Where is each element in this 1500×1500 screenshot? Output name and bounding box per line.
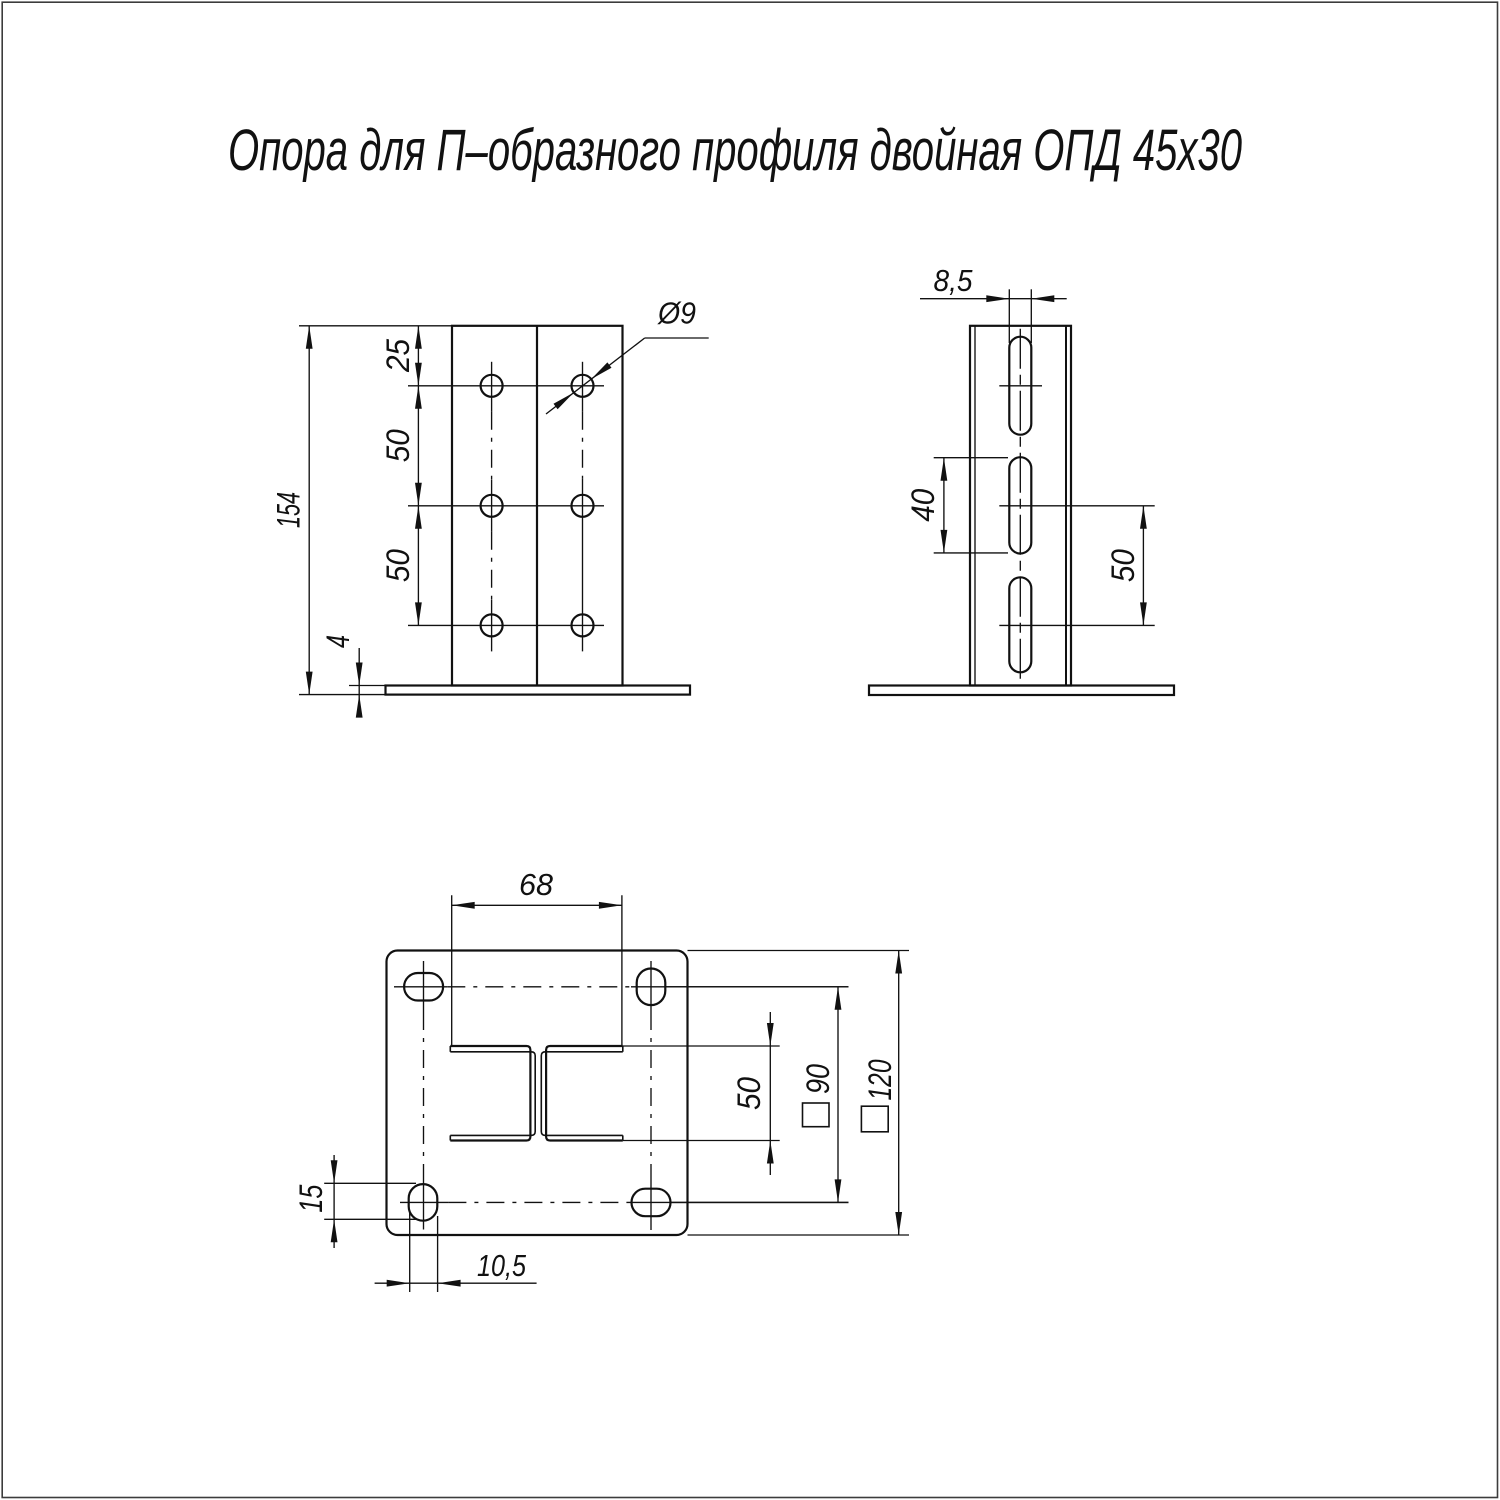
svg-text:40: 40 (905, 489, 941, 522)
svg-text:10,5: 10,5 (477, 1248, 527, 1283)
svg-text:4: 4 (320, 635, 356, 648)
svg-text:25: 25 (380, 339, 416, 373)
svg-text:50: 50 (731, 1077, 767, 1110)
svg-text:50: 50 (1105, 549, 1141, 582)
svg-text:68: 68 (519, 867, 554, 902)
svg-text:50: 50 (380, 549, 416, 582)
svg-text:120: 120 (862, 1059, 898, 1100)
svg-text:15: 15 (293, 1184, 329, 1212)
svg-text:154: 154 (271, 492, 307, 528)
svg-text:Ø9: Ø9 (657, 296, 696, 331)
svg-text:8,5: 8,5 (934, 263, 974, 298)
svg-text:Опора для П–образного профиля: Опора для П–образного профиля двойная ОП… (228, 119, 1242, 184)
svg-text:90: 90 (800, 1064, 836, 1094)
svg-text:50: 50 (380, 429, 416, 462)
